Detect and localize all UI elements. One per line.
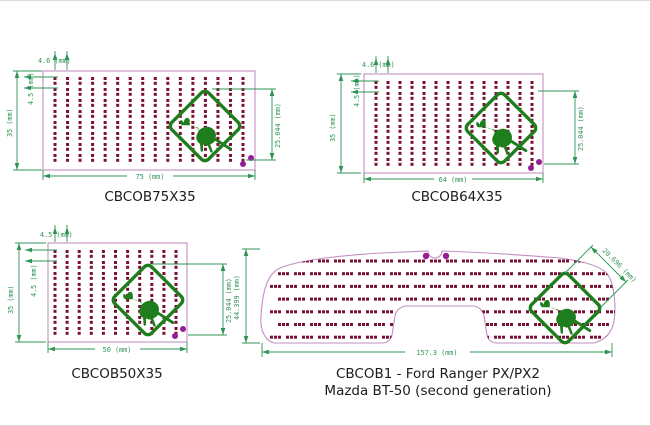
dim-column-pitch: 4.6 (mm) [362, 61, 395, 69]
cbcob64x35-drawing: 35 (mm) 4.6 (mm) 4.5 (mm) 25.044 (mm) 64… [330, 1, 650, 216]
panel-title: CBCOB75X35 [104, 189, 195, 205]
panel-title-line1: CBCOB1 - Ford Ranger PX/PX2 [336, 366, 540, 382]
panel-title-line2: Mazda BT-50 (second generation) [324, 383, 551, 399]
cbcob75x35-drawing: 35 (mm) 4.6 (mm) 4.5 (mm) 25.044 (mm) 75… [0, 1, 320, 216]
mounting-hole [172, 333, 178, 339]
panel-cbcob50x35: 35 (mm) 4.5 (mm) 4.5 (mm) 25.044 (mm) 50… [0, 216, 248, 426]
dim-board-height: 35 (mm) [6, 108, 14, 137]
dim-board-width: 75 (mm) [136, 173, 165, 181]
pcb-board-outline [43, 71, 255, 170]
dim-board-height: 35 (mm) [329, 113, 337, 142]
dim-board-height: 35 (mm) [7, 285, 15, 314]
panel-cbcob64x35: 35 (mm) 4.6 (mm) 4.5 (mm) 25.044 (mm) 64… [330, 1, 650, 216]
dim-board-height: 44.399 (mm) [233, 275, 241, 320]
pcb-board-outline [364, 74, 543, 173]
dim-row-pitch: 4.5 (mm) [353, 74, 361, 107]
mounting-hole [240, 161, 246, 167]
mounting-hole [180, 326, 186, 332]
cbcob50x35-drawing: 35 (mm) 4.5 (mm) 4.5 (mm) 25.044 (mm) 50… [0, 216, 248, 426]
panel-cbcob75x35: 35 (mm) 4.6 (mm) 4.5 (mm) 25.044 (mm) 75… [0, 1, 320, 216]
dim-row-pitch: 4.5 (mm) [27, 72, 35, 105]
dim-column-pitch: 4.5 (mm) [40, 231, 73, 239]
mounting-hole [443, 253, 449, 259]
mounting-hole [423, 253, 429, 259]
dim-column-pitch: 4.6 (mm) [38, 57, 71, 65]
panel-title: CBCOB64X35 [411, 189, 502, 205]
dim-board-width: 64 (mm) [439, 176, 468, 184]
mounting-hole [536, 159, 542, 165]
diagram-canvas: 35 (mm) 4.6 (mm) 4.5 (mm) 25.044 (mm) 75… [0, 0, 650, 426]
panel-title: CBCOB50X35 [71, 366, 162, 382]
dim-row-pitch: 4.5 (mm) [30, 264, 38, 297]
cbcob1-drawing: 44.399 (mm) 157.3 (mm) 20.696 (mm) CBCOB… [230, 216, 650, 426]
dim-board-width: 50 (mm) [103, 346, 132, 354]
dim-board-width: 157.3 (mm) [417, 349, 458, 357]
panel-cbcob1: 44.399 (mm) 157.3 (mm) 20.696 (mm) CBCOB… [230, 216, 650, 426]
mounting-hole [528, 165, 534, 171]
dim-sign-size: 25.044 (mm) [577, 106, 585, 151]
dim-sign-size: 25.044 (mm) [274, 103, 282, 148]
